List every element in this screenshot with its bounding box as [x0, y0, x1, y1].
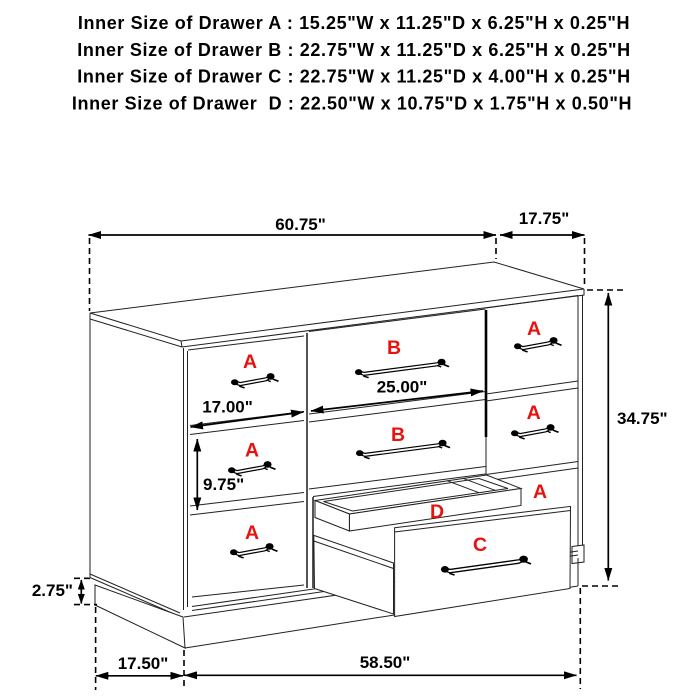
- svg-text:A: A: [527, 402, 541, 424]
- svg-text:A: A: [245, 440, 259, 462]
- svg-text:Inner Size of Drawer B : 22.75: Inner Size of Drawer B : 22.75"W x 11.25…: [77, 40, 631, 60]
- svg-text:25.00": 25.00": [377, 378, 428, 397]
- svg-text:17.75": 17.75": [519, 209, 570, 228]
- svg-text:A: A: [243, 351, 257, 373]
- svg-text:A: A: [533, 481, 547, 503]
- svg-text:34.75": 34.75": [617, 409, 668, 428]
- svg-text:60.75": 60.75": [275, 215, 326, 234]
- svg-text:A: A: [527, 318, 541, 340]
- svg-text:A: A: [245, 522, 259, 544]
- svg-text:Inner Size of Drawer C : 22.75: Inner Size of Drawer C : 22.75"W x 11.25…: [77, 67, 631, 87]
- svg-text:D: D: [430, 501, 444, 523]
- svg-text:2.75": 2.75": [32, 581, 73, 600]
- svg-text:B: B: [391, 424, 405, 446]
- svg-text:58.50": 58.50": [360, 653, 411, 672]
- svg-text:Inner Size of Drawer D : 22.5: Inner Size of Drawer D : 22.50"W x 10.75…: [72, 94, 632, 114]
- svg-text:17.00": 17.00": [202, 398, 253, 417]
- svg-text:C: C: [473, 534, 487, 556]
- svg-text:Inner Size of Drawer A : 15.25: Inner Size of Drawer A : 15.25"W x 11.25…: [78, 13, 630, 33]
- svg-text:17.50": 17.50": [118, 654, 169, 673]
- svg-text:9.75": 9.75": [203, 475, 244, 494]
- svg-text:B: B: [387, 337, 401, 359]
